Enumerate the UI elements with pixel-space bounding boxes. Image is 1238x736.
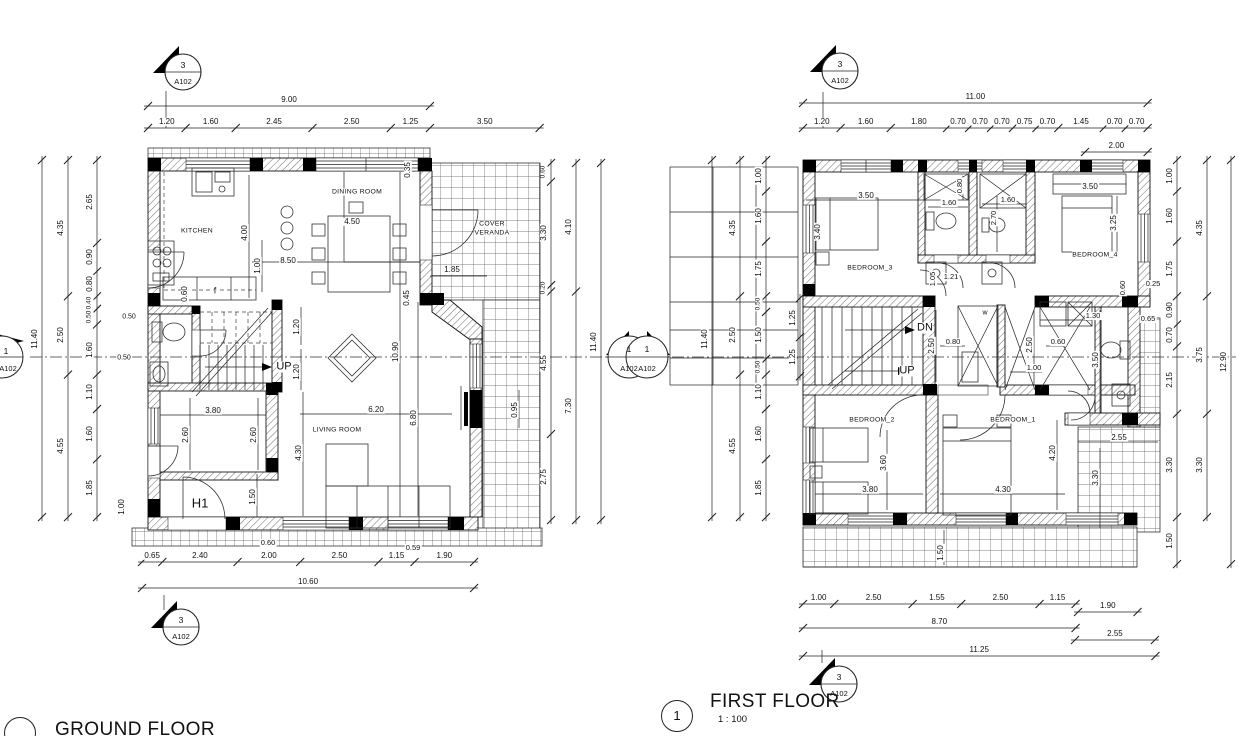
dim-label: 0.60 (541, 165, 548, 180)
dim-label: 0.45 (403, 289, 411, 307)
dim-label: 2.60 (250, 426, 258, 444)
dim-label: 0.50 (116, 354, 132, 361)
note-label: DN (917, 323, 933, 334)
dim-label: 0.60 (181, 285, 189, 303)
dim-label: 1.00 (1026, 364, 1043, 372)
dim-label: 2.15 (1166, 371, 1174, 389)
dim-label: 2.75 (540, 468, 548, 486)
dim-label: 3.50 (1081, 183, 1099, 191)
dim-label: 1.60 (1000, 196, 1017, 204)
dim-label: 2.45 (265, 118, 283, 126)
room-label: BEDROOM_1 (990, 417, 1035, 424)
dim-label: 0.70 (949, 118, 967, 126)
room-label: VERANDA (475, 230, 510, 237)
room-label: LIVING ROOM (313, 427, 362, 434)
dim-label: 10.90 (392, 341, 400, 363)
dim-label: 1.00 (755, 167, 763, 185)
dim-label: 4.55 (540, 354, 548, 372)
dim-label: 2.60 (182, 426, 190, 444)
dim-label: 0.65 (1140, 315, 1157, 323)
dim-label: 0.60 (1050, 338, 1067, 346)
dim-label: 1.60 (755, 208, 763, 226)
dim-label: 4.10 (565, 218, 573, 236)
dim-label: 2.50 (1026, 336, 1034, 354)
dim-label: 1.55 (928, 594, 946, 602)
dim-label: 1.20 (813, 118, 831, 126)
dim-label: 3.50 (1092, 351, 1100, 369)
dim-label: 1.60 (86, 425, 94, 443)
dim-label: 10.60 (297, 578, 319, 586)
dim-label: 1.30 (1085, 312, 1102, 320)
dim-label: 12.90 (1220, 351, 1228, 373)
dim-label: 1.60 (755, 425, 763, 443)
ground-floor-title: GROUND FLOOR (55, 719, 215, 736)
dim-label: 0.35 (404, 161, 412, 179)
dim-label: 4.30 (295, 444, 303, 462)
dim-label: 8.70 (930, 618, 948, 626)
dim-label: 1.10 (86, 383, 94, 401)
dim-label: 2.50 (865, 594, 883, 602)
first-floor-title: FIRST FLOOR (710, 691, 840, 713)
dim-label: 2.50 (992, 594, 1010, 602)
dim-label: 4.00 (241, 224, 249, 242)
dim-label: 11.00 (965, 93, 986, 101)
dim-label: 1.50 (249, 488, 257, 506)
dim-label: 1.15 (388, 552, 406, 560)
dim-label: 2.40 (191, 552, 209, 560)
dim-label: 0.50 (121, 313, 137, 320)
dim-label: 2.50 (928, 337, 936, 355)
dim-label: 2.50 (343, 118, 361, 126)
dim-label: 1.75 (1166, 260, 1174, 278)
dim-label: 1.90 (1099, 602, 1117, 610)
dim-label: 1.60 (1166, 208, 1174, 226)
dim-label: 1.25 (789, 348, 797, 366)
note-label: UP (899, 366, 914, 377)
dim-label: 4.30 (994, 486, 1012, 494)
dim-label: 0.80 (956, 178, 964, 195)
dim-label: 0.70 (993, 118, 1011, 126)
dim-label: 1.45 (1072, 118, 1090, 126)
dim-label: 2.00 (260, 552, 278, 560)
room-label: KITCHEN (181, 228, 213, 235)
dim-label: 2.70 (990, 210, 998, 227)
dim-label: 1.25 (402, 118, 420, 126)
dim-label: 0.75 (1016, 118, 1034, 126)
dim-label: 0.65 (143, 552, 161, 560)
dim-label: 1.75 (755, 260, 763, 278)
first-floor-view-number: 1 (661, 700, 693, 732)
dim-label: 1.60 (941, 199, 958, 207)
dim-label: 2.55 (1110, 434, 1128, 442)
label-layer: 9.001.201.602.452.501.253.5011.404.352.5… (0, 0, 1238, 736)
dim-label: 11.40 (590, 331, 598, 352)
dim-label: 1.00 (1166, 167, 1174, 185)
dim-label: 1.50 (937, 544, 945, 562)
dim-label: 6.20 (367, 406, 385, 414)
dim-label: 0.90 (86, 248, 94, 266)
dim-label: 3.30 (1092, 469, 1100, 487)
dim-label: 4.55 (729, 437, 737, 455)
dim-label: 1.60 (857, 118, 875, 126)
note-label: UP (276, 362, 291, 373)
dim-label: 2.65 (86, 193, 94, 211)
dim-label: 3.80 (204, 407, 222, 415)
dim-label: 1.50 (755, 327, 763, 345)
dim-label: 7.30 (565, 397, 573, 415)
dim-label: 1.85 (86, 479, 94, 497)
dim-label: 0.50 (756, 297, 763, 312)
dim-label: 1.05 (929, 271, 937, 288)
dim-label: 1.21 (943, 273, 960, 281)
dim-label: 0.20 (541, 281, 548, 296)
dim-label: 3.80 (861, 486, 879, 494)
dim-label: 0.40 (87, 295, 94, 310)
dim-label: 3.40 (814, 223, 822, 241)
dim-label: 0.50 (756, 359, 763, 374)
dim-label: 1.10 (755, 383, 763, 401)
dim-label: 3.75 (1196, 346, 1204, 364)
dim-label: 1.90 (436, 552, 454, 560)
dim-label: 4.20 (1049, 444, 1057, 462)
dim-label: 1.20 (293, 363, 301, 381)
dim-label: 1.50 (1166, 532, 1174, 550)
dim-label: 1.80 (910, 118, 928, 126)
first-floor-scale: 1 : 100 (718, 714, 747, 725)
dim-label: 3.50 (476, 118, 494, 126)
room-label: DINING ROOM (332, 189, 382, 196)
dim-label: 2.50 (729, 327, 737, 345)
dim-label: 8.50 (279, 257, 297, 265)
note-label: f (214, 287, 217, 296)
dim-label: 0.70 (1166, 327, 1174, 345)
dim-label: 0.70 (1106, 118, 1124, 126)
dim-label: 9.00 (280, 96, 298, 104)
dim-label: 0.95 (511, 401, 519, 419)
dim-label: 4.55 (57, 437, 65, 455)
dim-label: 0.50 (87, 309, 94, 324)
dim-label: 4.35 (57, 219, 65, 237)
room-label: COVER (479, 221, 505, 228)
dim-label: 2.55 (1106, 630, 1124, 638)
dim-label: 0.60 (1119, 280, 1127, 297)
room-label: BEDROOM_2 (849, 417, 894, 424)
dim-label: 1.85 (755, 479, 763, 497)
dim-label: 4.35 (729, 219, 737, 237)
dim-label: 1.00 (118, 498, 126, 516)
dim-label: 3.25 (1110, 214, 1118, 232)
dim-label: 2.50 (57, 327, 65, 345)
dim-label: 6.80 (410, 409, 418, 427)
dim-label: 11.40 (31, 328, 39, 349)
dim-label: 1.00 (254, 257, 262, 275)
dim-label: 2.50 (331, 552, 349, 560)
dim-label: 1.15 (1049, 594, 1067, 602)
dim-label: 4.35 (1196, 219, 1204, 237)
floor-plan-sheet: 3A1023A1023A1023A1021A1021A1021A102 9.00… (0, 0, 1238, 736)
dim-label: 0.25 (1145, 280, 1162, 288)
room-label: BEDROOM_4 (1072, 252, 1117, 259)
note-label: H1 (192, 497, 209, 510)
dim-label: 2.00 (1108, 142, 1126, 150)
dim-label: 0.70 (1039, 118, 1057, 126)
dim-label: 1.00 (810, 594, 828, 602)
dim-label: 0.70 (971, 118, 989, 126)
dim-label: 11.40 (701, 328, 709, 349)
dim-label: 3.30 (1196, 457, 1204, 475)
dim-label: 1.85 (443, 266, 461, 274)
dim-label: 1.20 (158, 118, 176, 126)
dim-label: 3.30 (1166, 457, 1174, 475)
dim-label: 0.90 (1166, 302, 1174, 320)
dim-label: 1.60 (202, 118, 220, 126)
dim-label: 0.59 (405, 544, 422, 552)
dim-label: 3.50 (857, 192, 875, 200)
dim-label: 4.50 (343, 218, 361, 226)
note-label: w (982, 310, 987, 317)
dim-label: 1.20 (293, 318, 301, 336)
dim-label: 3.60 (880, 454, 888, 472)
dim-label: 0.80 (945, 338, 962, 346)
dim-label: 11.25 (969, 646, 990, 654)
dim-label: 1.25 (789, 309, 797, 327)
room-label: BEDROOM_3 (847, 265, 892, 272)
dim-label: 0.70 (1128, 118, 1146, 126)
dim-label: 0.80 (86, 275, 94, 293)
dim-label: 0.60 (260, 539, 277, 547)
dim-label: 3.30 (540, 225, 548, 243)
dim-label: 1.60 (86, 341, 94, 359)
